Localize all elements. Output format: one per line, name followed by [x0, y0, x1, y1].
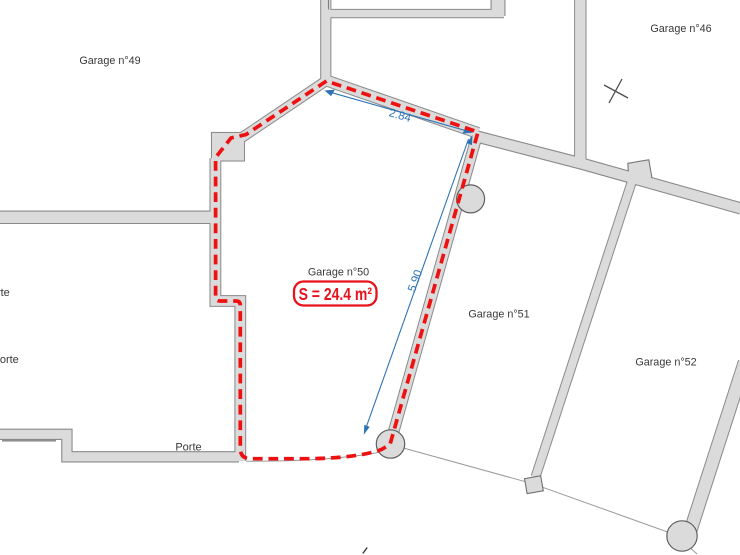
svg-text:Garage n°52: Garage n°52 — [635, 357, 696, 369]
svg-text:Porte: Porte — [0, 354, 19, 366]
svg-text:Garage n°46: Garage n°46 — [650, 23, 711, 35]
svg-text:Porte: Porte — [175, 442, 201, 454]
svg-text:Garage n°51: Garage n°51 — [468, 309, 529, 321]
svg-text:Porte: Porte — [0, 287, 10, 299]
svg-text:Garage n°49: Garage n°49 — [79, 55, 140, 67]
svg-text:5.90: 5.90 — [406, 268, 425, 293]
svg-text:S = 24.4 m²: S = 24.4 m² — [299, 286, 372, 305]
svg-text:Garage n°50: Garage n°50 — [308, 267, 369, 279]
